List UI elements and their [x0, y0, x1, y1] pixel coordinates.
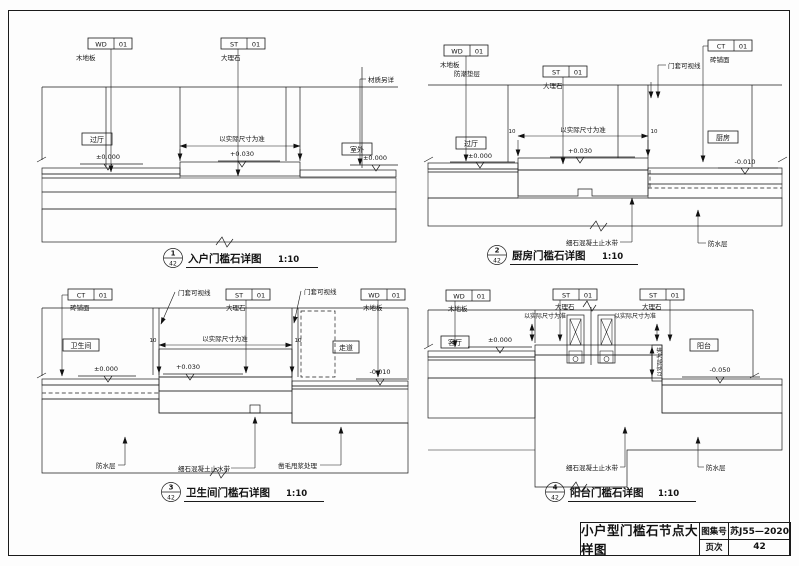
dim-value: 10	[150, 338, 157, 344]
d1-bedding-1	[42, 178, 396, 192]
elevation-value: -0.050	[710, 366, 731, 374]
tag-label: 砖铺面	[70, 303, 90, 312]
tag-code: ST	[649, 292, 657, 300]
tag-label: 木地板	[440, 60, 460, 69]
caption-number: 3	[169, 484, 174, 492]
tag-code: WD	[453, 293, 464, 301]
dim-note-text: 以实际尺寸为准	[614, 312, 656, 320]
tag-label: 大理石	[555, 302, 575, 311]
d2-bedding-right-2	[648, 184, 782, 198]
d3-caption: 3 42 卫生间门槛石详图 1:10	[162, 483, 325, 502]
door-sightline-text: 门套可视线	[304, 287, 337, 296]
elevation-value: ±0.000	[488, 336, 512, 344]
d1-slab	[42, 209, 396, 242]
atlas-number-value: 苏J55—2020	[729, 523, 790, 539]
d2-kitchen-tile	[648, 168, 782, 174]
d2-break-mark	[590, 221, 607, 231]
d1-bedding-2	[42, 192, 396, 209]
tag-num: 01	[119, 41, 127, 49]
d1-elev-left: ±0.000	[80, 153, 143, 170]
dim-value: 10	[509, 129, 516, 135]
room-label: 厨房	[716, 133, 730, 142]
caption-number: 4	[553, 484, 558, 492]
d3-bath-bedding	[42, 385, 159, 399]
d1-tag-wd: WD 01 木地板	[76, 38, 132, 172]
caption-scale: 1:10	[278, 255, 299, 265]
d3-tag-wd: WD 01 木地板	[361, 289, 405, 377]
elevation-value: +0.030	[230, 150, 254, 158]
waterproof-text: 防水层	[96, 461, 116, 470]
d2-wood-underlay	[428, 169, 518, 172]
note-material-text: 材质另详	[368, 75, 395, 84]
door-sightline-text: 门套可视线	[668, 61, 701, 70]
caption-scale: 1:10	[286, 489, 307, 499]
room-label: 走道	[339, 343, 353, 352]
d2-note-waterstop: 细石混凝土止水带	[566, 198, 632, 247]
tag-code: CT	[77, 292, 86, 300]
caption-scale: 1:10	[658, 489, 679, 499]
waterproof-text: 防水层	[706, 463, 726, 472]
d1-break-mark	[216, 237, 233, 247]
elevation-value: ±0.000	[468, 152, 492, 160]
d3-dim: 以实际尺寸为准 10 10	[150, 334, 302, 373]
tag-num: 01	[477, 293, 485, 301]
dim-note-text: 以实际为准	[656, 347, 664, 377]
d2-tag-ct: CT 01 砖铺面	[703, 40, 752, 162]
d4-balcony-bedding	[662, 385, 782, 413]
sheet-title: 小户型门槛石节点大样图	[581, 523, 700, 555]
dim-value: 10	[651, 129, 658, 135]
tag-label: 木地板	[363, 303, 383, 312]
dim-note-text: 以实际尺寸为准	[219, 134, 265, 143]
detail-3-panel: CT 01 砖铺面 ST 01 大理石 WD 01 木地板 门套可视线 门套可视…	[28, 277, 415, 519]
elevation-value: -0.010	[370, 368, 391, 376]
d2-caption: 2 42 厨房门槛石详图 1:10	[488, 246, 639, 265]
tag-sublabel: 防潮垫层	[454, 69, 481, 78]
d1-caption: 1 42 入户门槛石详图 1:10	[164, 249, 319, 268]
d4-note-waterstop: 细石混凝土止水带	[566, 427, 625, 472]
caption-number: 2	[495, 247, 500, 255]
d1-room-left: 过厅	[82, 133, 112, 145]
d4-slab-left	[428, 378, 535, 418]
detail-1-panel: WD 01 木地板 ST 01 大理石 材质另详 以实际尺寸为准 过厅	[28, 12, 406, 276]
d1-wall-lines	[37, 67, 398, 168]
tag-num: 01	[739, 43, 747, 51]
tag-num: 01	[584, 292, 592, 300]
elevation-value: -0.010	[735, 158, 756, 166]
dim-note-text: 以实际尺寸为准	[560, 125, 606, 134]
tag-code: ST	[230, 41, 238, 49]
d1-wood-underlay	[42, 174, 180, 178]
d3-threshold-base	[159, 391, 292, 413]
tag-num: 01	[671, 292, 679, 300]
d2-waterproof-line	[648, 170, 782, 188]
caption-title: 入户门槛石详图	[188, 252, 262, 265]
tag-num: 01	[257, 292, 265, 300]
elevation-value: ±0.000	[94, 365, 118, 373]
caption-sheet: 42	[167, 495, 175, 502]
d3-note-rough: 凿毛甩浆处理	[278, 427, 341, 470]
page-number-value: 42	[729, 540, 790, 556]
d3-room-right: 走道	[333, 341, 359, 353]
tag-num: 01	[252, 41, 260, 49]
tag-code: WD	[95, 41, 106, 49]
roughening-text: 凿毛甩浆处理	[278, 461, 318, 470]
tag-label: 大理石	[642, 302, 662, 311]
tag-label: 大理石	[226, 303, 246, 312]
d3-tag-ct: CT 01 砖铺面	[62, 289, 112, 376]
caption-sheet: 42	[493, 258, 501, 265]
d2-elev-left: ±0.000	[450, 152, 515, 168]
d2-elev-right: -0.010	[718, 158, 778, 174]
title-block: 小户型门槛石节点大样图 图集号 苏J55—2020 页次 42	[580, 522, 791, 556]
tag-num: 01	[392, 292, 400, 300]
elevation-value: +0.030	[176, 363, 200, 371]
d4-note-waterproof: 防水层	[698, 437, 726, 472]
tag-code: WD	[451, 48, 462, 56]
d3-note-waterproof: 防水层	[96, 437, 125, 470]
d3-elev-left: ±0.000	[78, 365, 136, 382]
d2-bedding-left	[428, 172, 518, 198]
tag-code: ST	[562, 292, 570, 300]
d3-room-left: 卫生间	[63, 339, 99, 351]
room-label: 室外	[350, 145, 364, 154]
tag-label: 大理石	[543, 81, 563, 90]
dim-value: 10	[295, 338, 302, 344]
d2-wood-floor	[428, 163, 518, 169]
d2-slab	[428, 198, 782, 226]
d3-note-door-right: 门套可视线	[294, 287, 337, 323]
caption-scale: 1:10	[602, 252, 623, 262]
caption-title: 厨房门槛石详图	[512, 249, 586, 262]
detail-4-panel: WD 01 木地板 ST 01 大理石 ST 01 大理石 以实际尺寸为准 以实…	[420, 277, 792, 519]
caption-title: 卫生间门槛石详图	[186, 486, 270, 499]
d3-elev-right: -0.010	[356, 368, 407, 385]
d3-door-leaf-dashed	[301, 311, 335, 377]
tag-code: CT	[717, 43, 726, 51]
tag-code: WD	[368, 292, 379, 300]
d4-frame-break	[583, 301, 596, 311]
d3-threshold-stone	[159, 377, 292, 391]
room-label: 过厅	[90, 135, 104, 144]
d1-elev-mid: +0.030	[218, 150, 280, 167]
elevation-value: +0.030	[568, 147, 592, 155]
d4-threshold-stone	[535, 345, 662, 355]
waterstop-text: 细石混凝土止水带	[566, 238, 619, 247]
d3-corridor-bedding	[292, 389, 408, 423]
d1-note-material: 材质另详	[360, 75, 395, 165]
d2-note-door: 门套可视线	[651, 61, 701, 98]
d3-bath-tile	[42, 379, 159, 385]
d4-wood-floor	[428, 351, 535, 357]
d2-threshold-stone	[518, 158, 648, 170]
tag-label: 砖铺面	[710, 55, 730, 64]
page-number-label: 页次	[700, 540, 729, 556]
d2-bedding-right-1	[648, 174, 782, 184]
elevation-value: ±0.000	[363, 154, 387, 162]
waterstop-text: 细石混凝土止水带	[566, 463, 619, 472]
d4-dim-vertical: 以实际为准	[652, 347, 664, 377]
tag-label: 木地板	[76, 53, 96, 62]
tag-num: 01	[99, 292, 107, 300]
d3-elev-mid: +0.030	[163, 363, 243, 380]
tag-code: ST	[552, 69, 560, 77]
waterproof-text: 防水层	[708, 239, 728, 248]
d4-threshold-bedding	[535, 355, 652, 378]
caption-number: 1	[171, 250, 176, 258]
room-label: 过厅	[464, 139, 478, 148]
d3-corridor-underlay	[292, 386, 408, 389]
d3-note-door-left: 门套可视线	[161, 288, 211, 324]
caption-sheet: 42	[551, 495, 559, 502]
room-label: 卫生间	[71, 341, 92, 350]
waterstop-text: 细石混凝土止水带	[178, 464, 231, 473]
elevation-value: ±0.000	[96, 153, 120, 161]
room-label: 阳台	[697, 341, 711, 350]
d4-wood-underlay	[428, 357, 535, 360]
d4-dim-right: 以实际尺寸为准	[614, 312, 657, 341]
d3-note-waterstop: 细石混凝土止水带	[178, 417, 255, 473]
dim-note-text: 以实际尺寸为准	[524, 312, 566, 320]
d4-elev-right: -0.050	[682, 366, 760, 383]
dim-note-text: 以实际尺寸为准	[202, 334, 248, 343]
d4-caption: 4 42 阳台门槛石详图 1:10	[546, 483, 697, 502]
d4-room-right: 阳台	[690, 339, 718, 351]
d2-room-left: 过厅	[456, 137, 486, 149]
caption-title: 阳台门槛石详图	[570, 486, 644, 499]
d3-corridor-wood	[292, 381, 408, 386]
d3-tag-st: ST 01 大理石	[226, 289, 270, 373]
d2-floor-layers	[428, 158, 782, 231]
d1-floor-layers	[42, 162, 396, 247]
d2-waterstop-base	[518, 170, 648, 196]
tag-label: 木地板	[448, 304, 468, 313]
d2-room-right: 厨房	[708, 131, 738, 143]
d4-elev-left: ±0.000	[468, 336, 532, 353]
d4-bedding-left	[428, 360, 535, 378]
d2-note-waterproof: 防水层	[698, 210, 728, 248]
drawing-sheet: WD 01 木地板 ST 01 大理石 材质另详 以实际尺寸为准 过厅	[0, 0, 799, 566]
tag-num: 01	[475, 48, 483, 56]
detail-2-panel: WD 01 木地板 防潮垫层 ST 01 大理石 CT 01 砖铺面 门套可视线	[420, 12, 792, 276]
d1-outdoor-paving	[300, 170, 396, 177]
room-label: 客厅	[448, 338, 462, 347]
door-sightline-text: 门套可视线	[178, 288, 211, 297]
d1-elev-right: ±0.000	[350, 154, 398, 171]
atlas-number-label: 图集号	[700, 523, 729, 539]
tag-num: 01	[574, 69, 582, 77]
tag-code: ST	[235, 292, 243, 300]
d3-waterstop-notch	[250, 405, 260, 413]
caption-sheet: 42	[169, 261, 177, 268]
